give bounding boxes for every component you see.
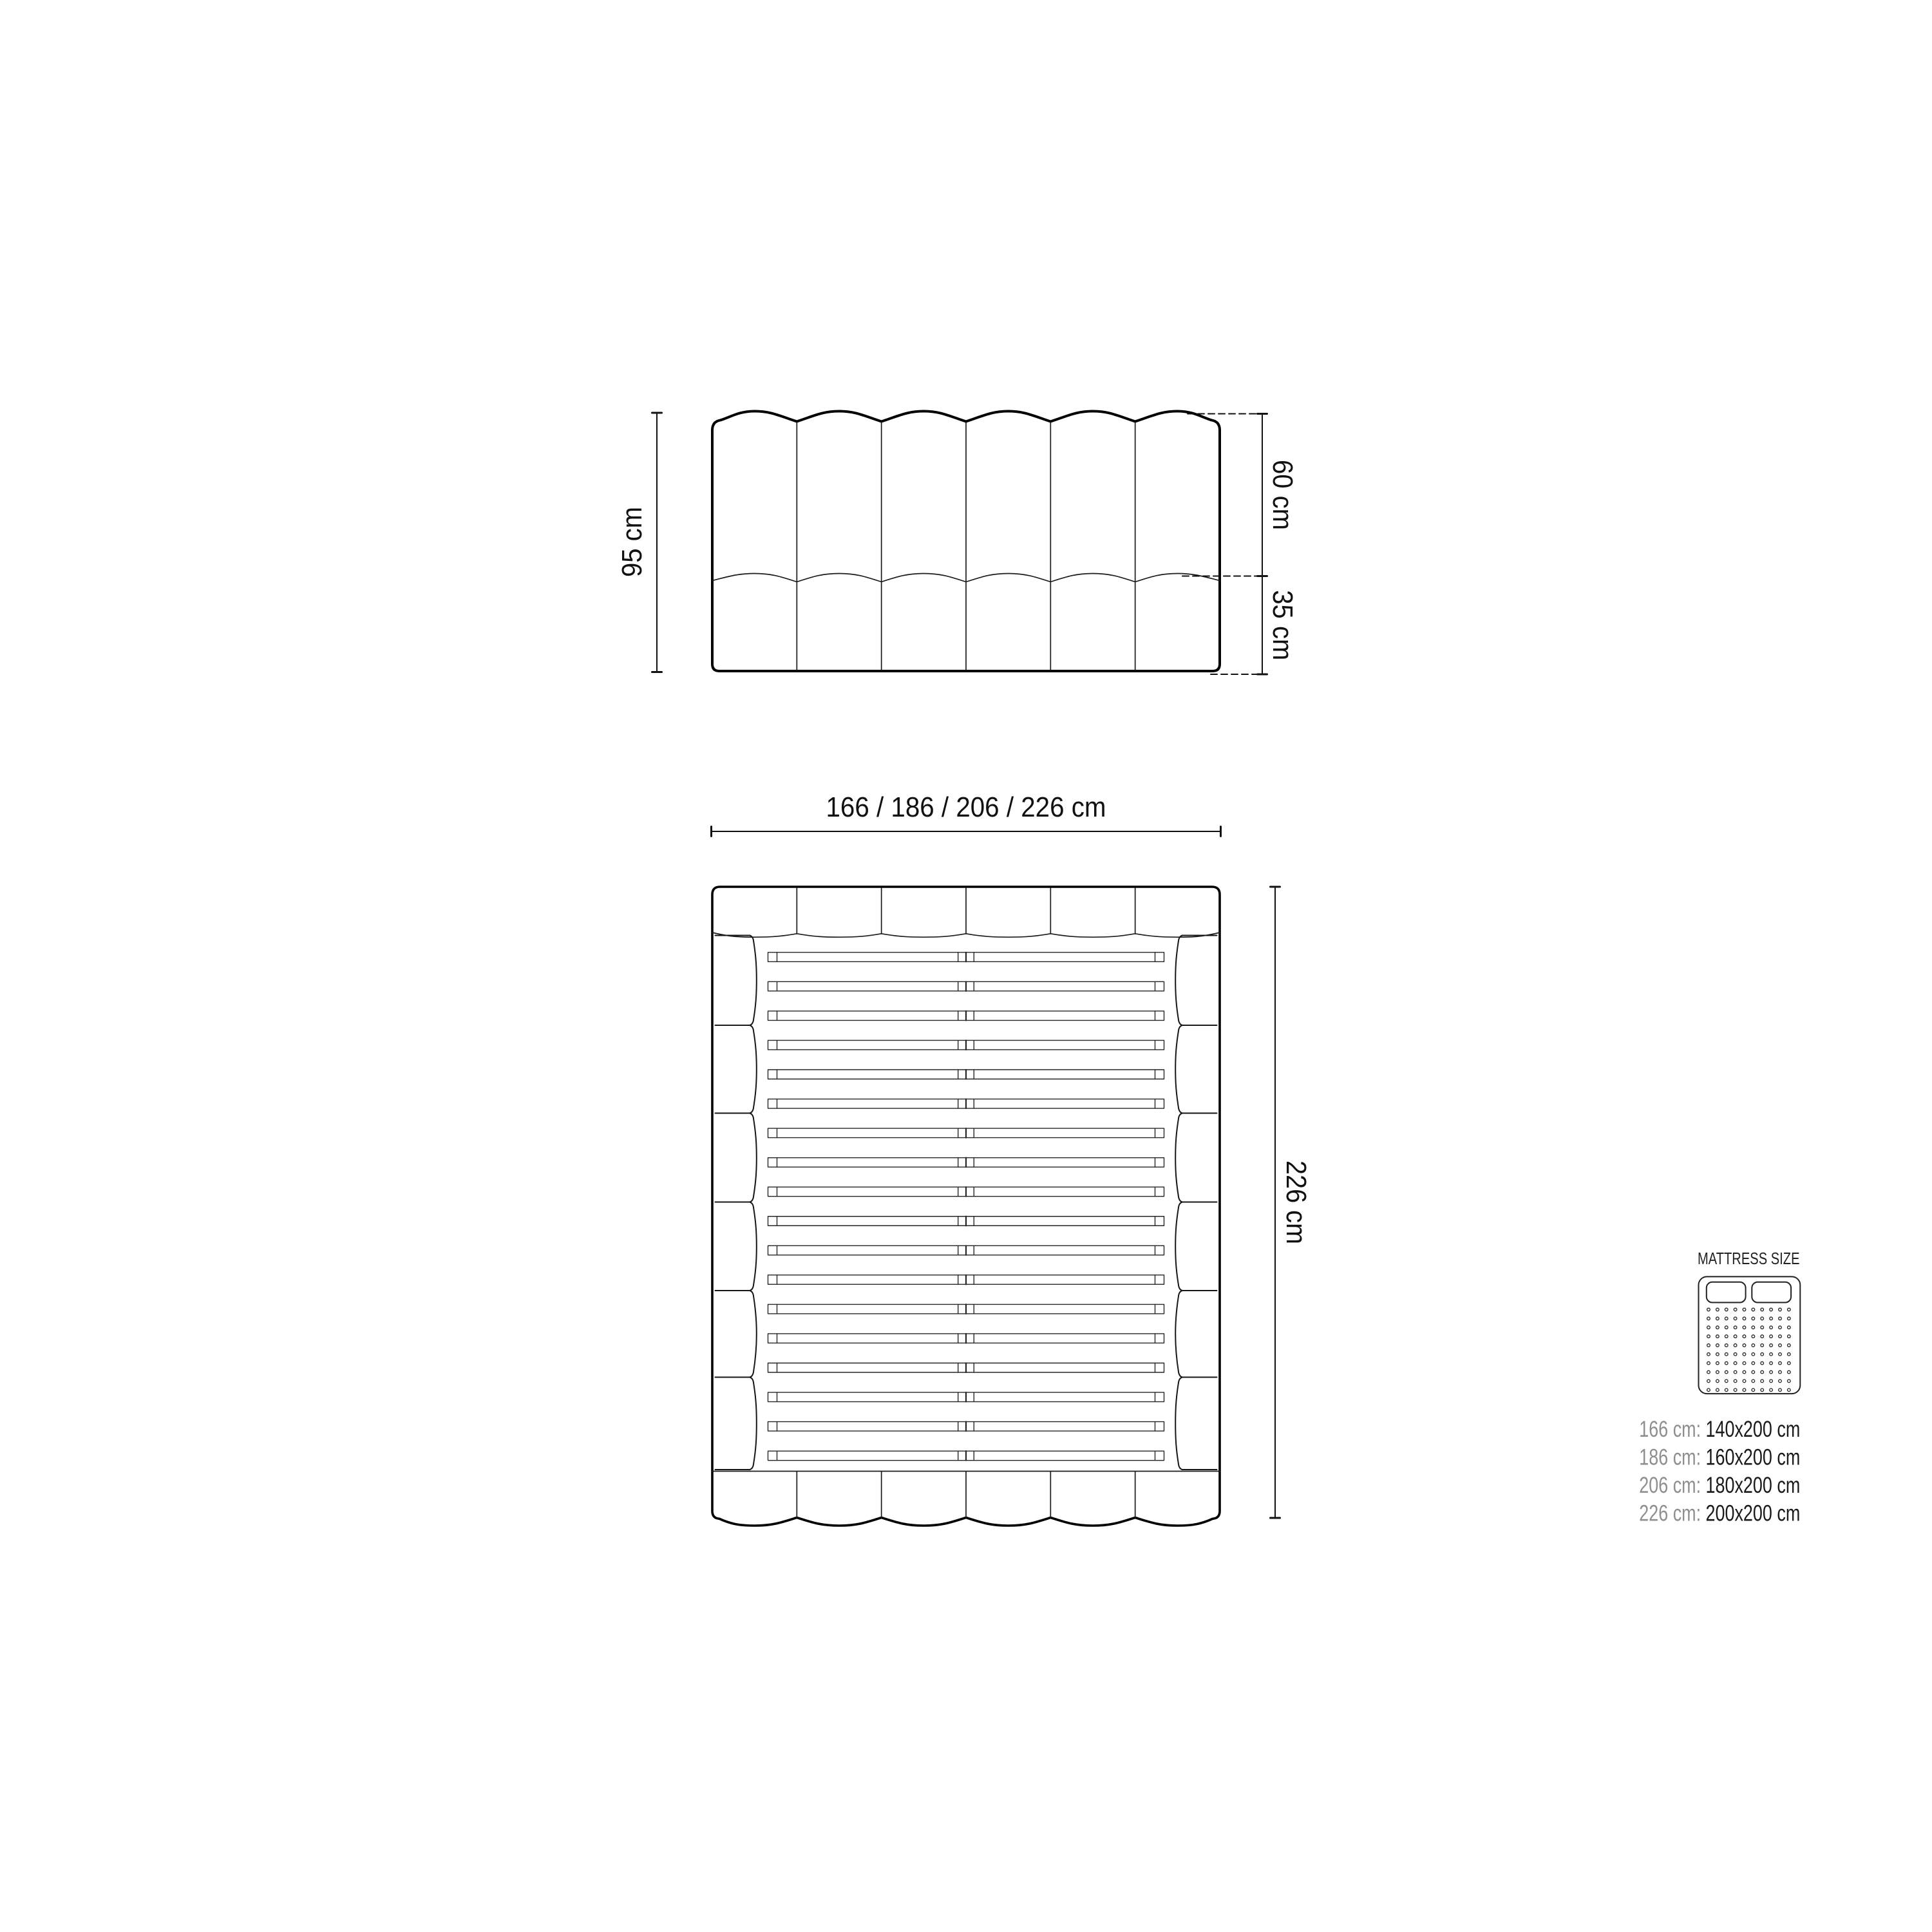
svg-text:200x200 cm: 200x200 cm (1706, 1501, 1801, 1526)
svg-text:140x200 cm: 140x200 cm (1706, 1417, 1801, 1442)
svg-text:MATTRESS SIZE: MATTRESS SIZE (1698, 1249, 1800, 1268)
svg-text:180x200 cm: 180x200 cm (1706, 1473, 1801, 1498)
svg-text:60 cm: 60 cm (1267, 460, 1298, 530)
svg-text:160x200 cm: 160x200 cm (1706, 1445, 1801, 1470)
svg-text:186 cm:: 186 cm: (1639, 1445, 1701, 1470)
svg-text:166 / 186 / 206 / 226 cm: 166 / 186 / 206 / 226 cm (826, 791, 1106, 823)
svg-text:35 cm: 35 cm (1267, 590, 1298, 660)
svg-text:226 cm:: 226 cm: (1639, 1501, 1701, 1526)
svg-text:166 cm:: 166 cm: (1639, 1417, 1701, 1442)
svg-text:206 cm:: 206 cm: (1639, 1473, 1701, 1498)
svg-text:95 cm: 95 cm (616, 507, 648, 577)
svg-text:226 cm: 226 cm (1280, 1160, 1312, 1244)
